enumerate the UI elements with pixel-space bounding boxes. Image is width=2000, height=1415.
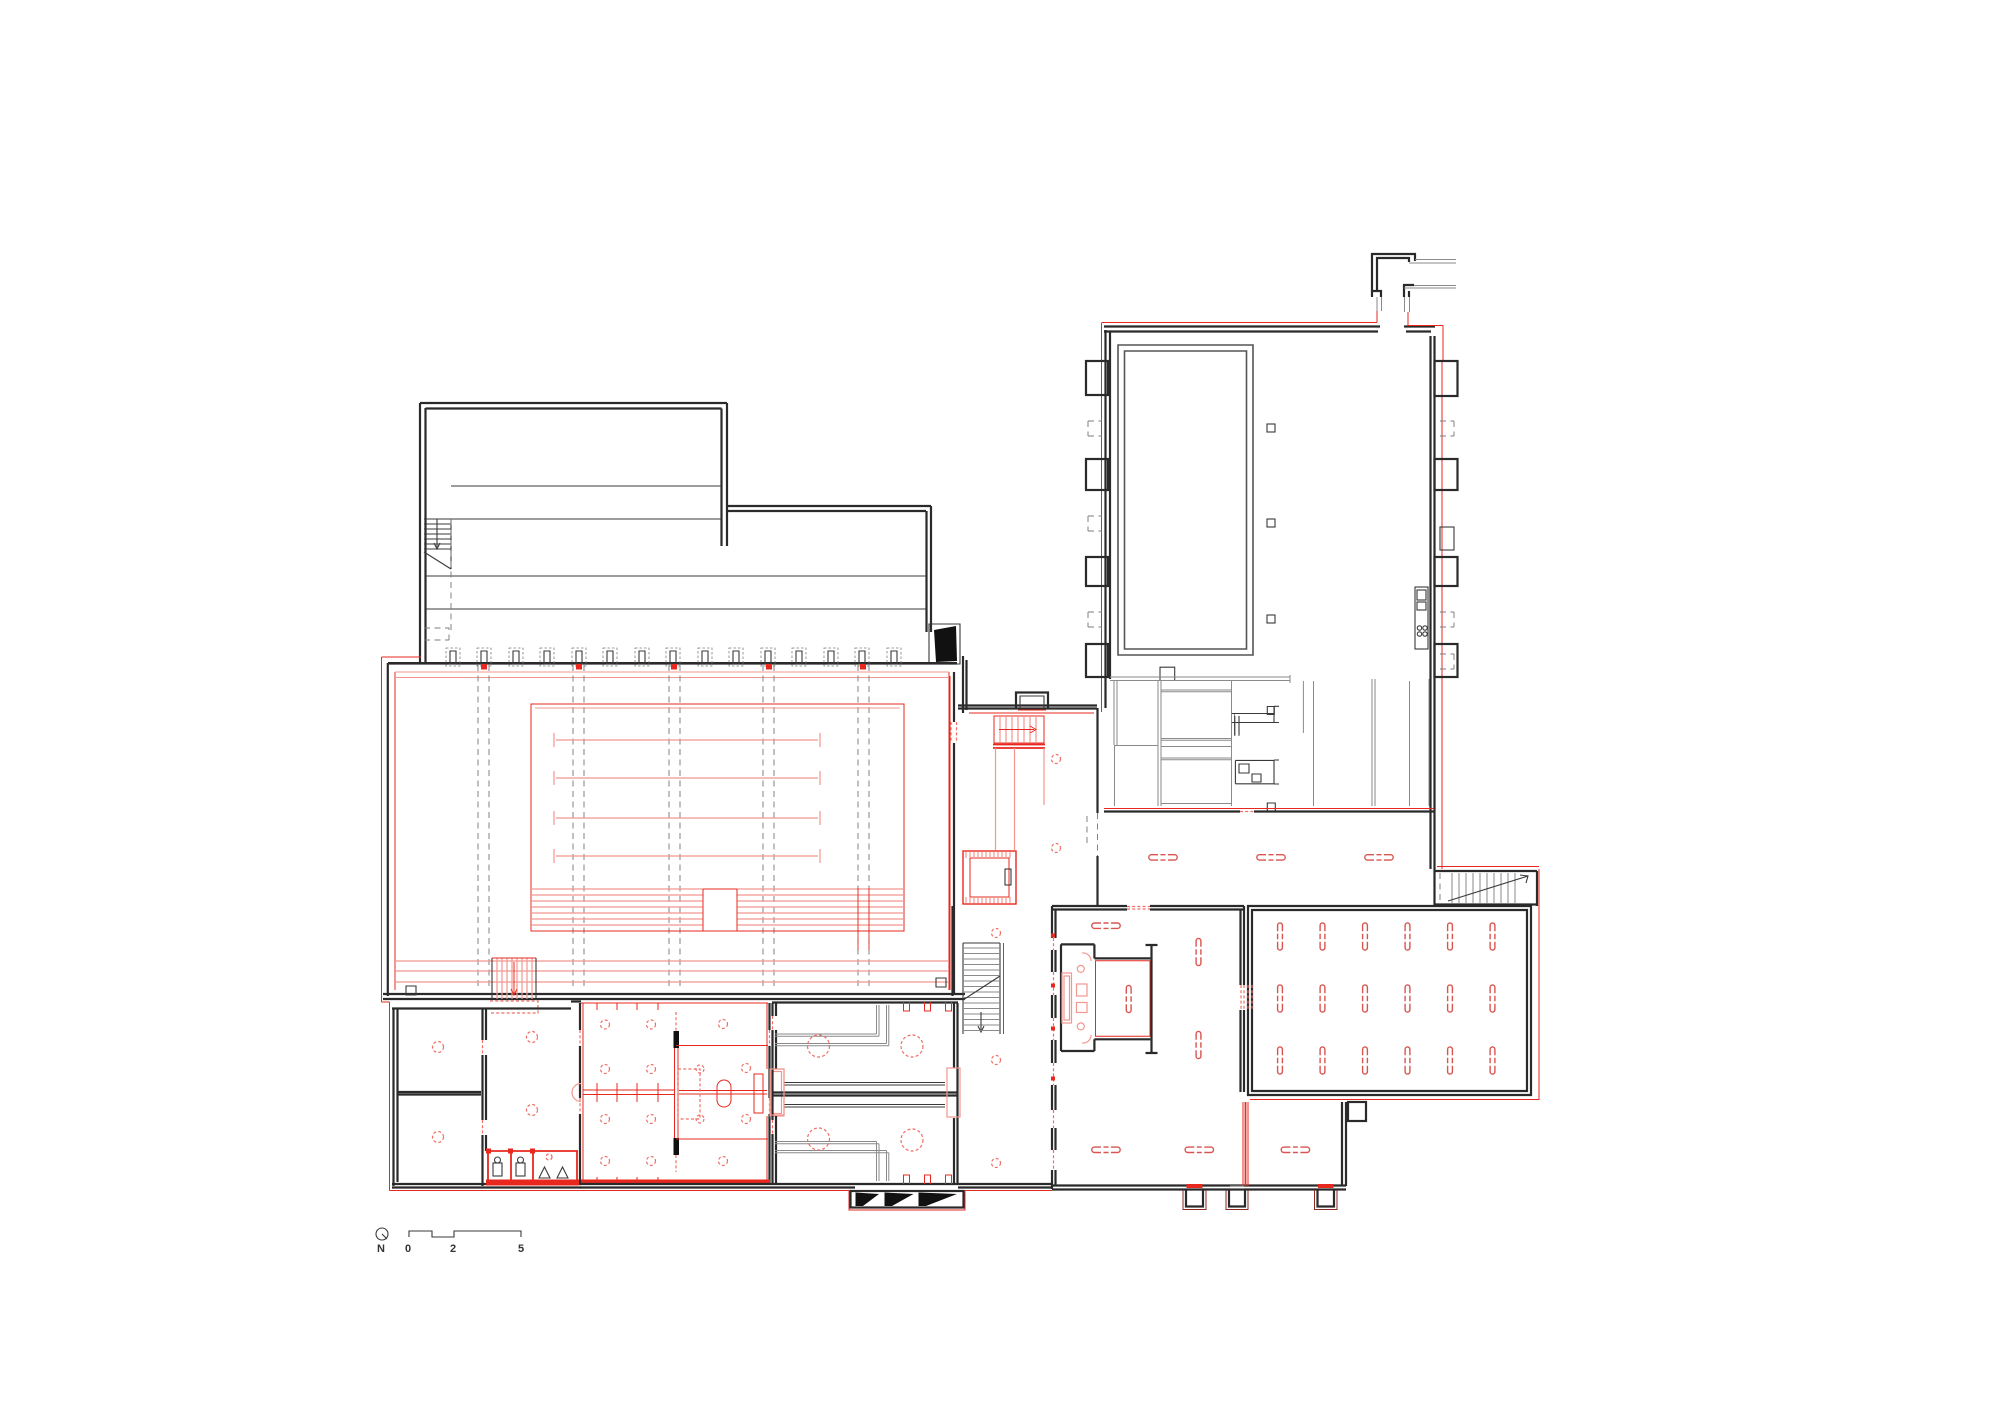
svg-text:0: 0 [405, 1243, 411, 1255]
svg-text:5: 5 [518, 1243, 524, 1255]
svg-text:2: 2 [450, 1243, 456, 1255]
svg-text:N: N [377, 1243, 385, 1255]
